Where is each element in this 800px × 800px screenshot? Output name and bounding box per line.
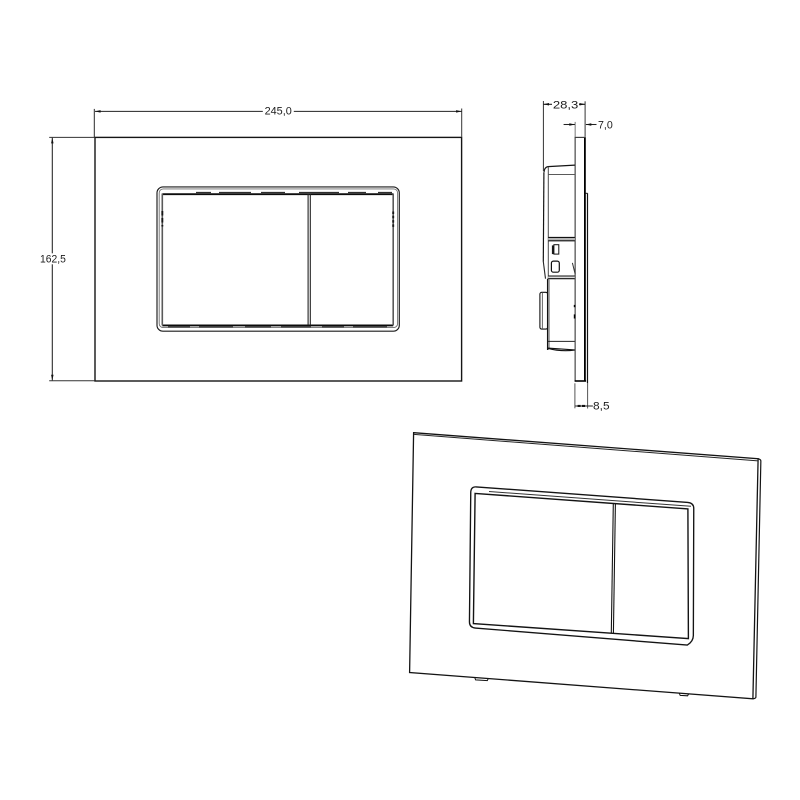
svg-text:245,0: 245,0 (265, 106, 292, 118)
svg-text:8,5: 8,5 (593, 400, 610, 412)
svg-text:28,3: 28,3 (553, 99, 579, 111)
svg-text:162,5: 162,5 (40, 254, 66, 266)
svg-text:7,0: 7,0 (598, 119, 613, 131)
